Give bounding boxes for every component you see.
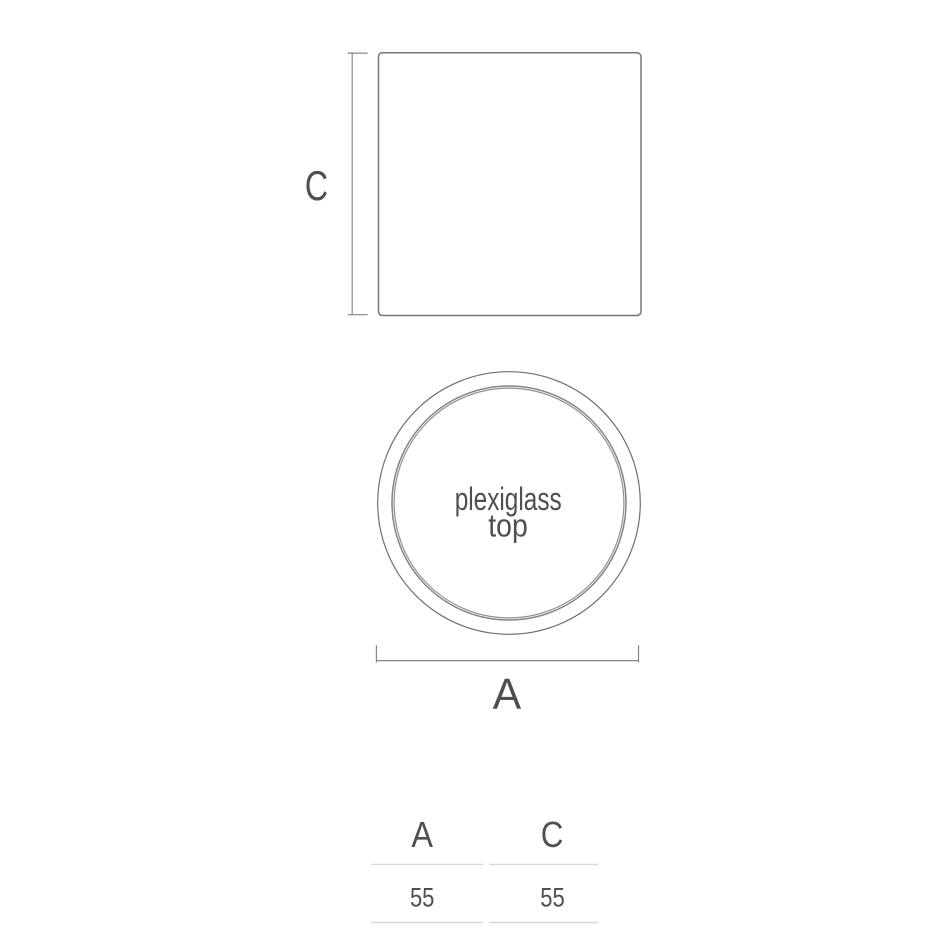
svg-text:A: A bbox=[493, 670, 522, 719]
svg-text:top: top bbox=[488, 507, 528, 543]
svg-text:55: 55 bbox=[540, 883, 565, 913]
svg-text:C: C bbox=[305, 162, 328, 209]
svg-text:A: A bbox=[411, 814, 433, 855]
svg-text:C: C bbox=[541, 814, 564, 855]
svg-text:55: 55 bbox=[410, 883, 435, 913]
